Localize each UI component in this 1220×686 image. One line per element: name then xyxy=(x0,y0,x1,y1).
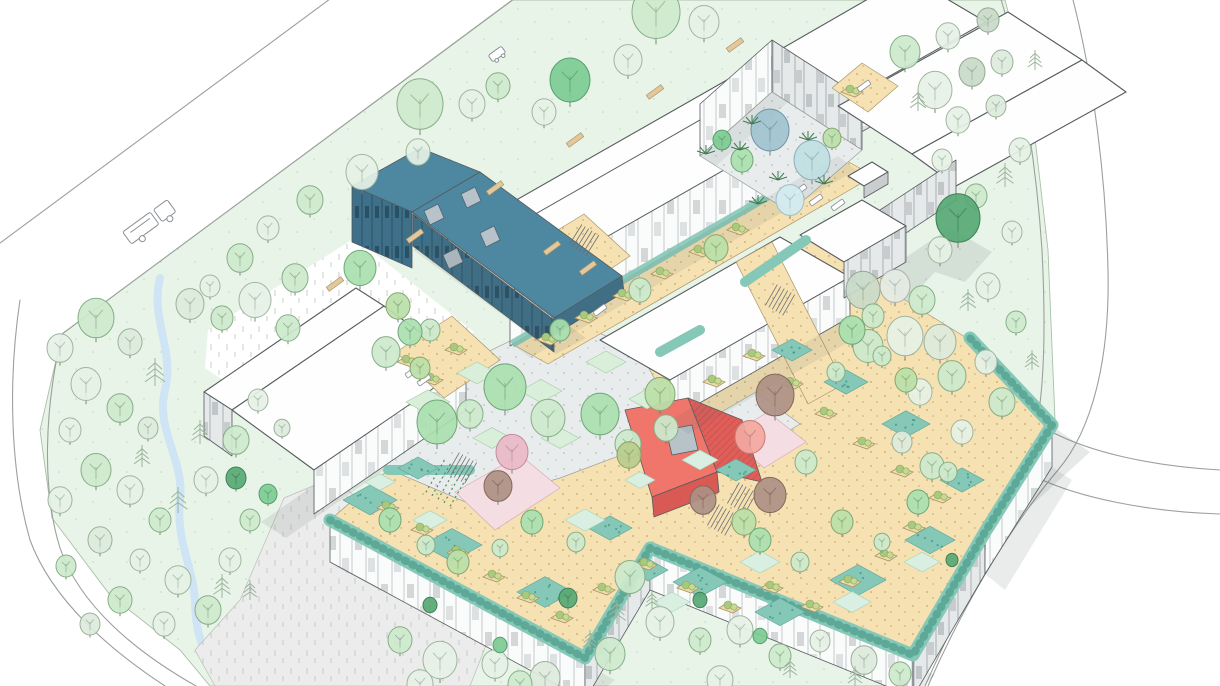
teal-patch-dot xyxy=(967,476,969,478)
teal-patch-dot xyxy=(937,544,939,546)
teal-patch-dot xyxy=(549,584,551,586)
teal-patch-dot xyxy=(618,531,620,533)
teal-patch-dot xyxy=(968,484,970,486)
teal-patch-dot xyxy=(615,528,617,530)
teal-patch-dot xyxy=(843,384,845,386)
teal-patch-dot xyxy=(846,386,848,388)
teal-patch-dot xyxy=(941,546,943,548)
planter-shrub xyxy=(851,578,857,584)
teal-patch-dot xyxy=(546,597,548,599)
tree-canopy xyxy=(493,637,507,652)
teal-patch-dot xyxy=(798,347,800,349)
teal-patch-dot xyxy=(791,346,793,348)
teal-patch-dot xyxy=(744,471,746,473)
teal-patch-dot xyxy=(604,525,606,527)
teal-patch-dot xyxy=(781,349,783,351)
teal-patch-dot xyxy=(911,423,913,425)
tree-canopy xyxy=(423,597,437,612)
planter-shrub xyxy=(563,614,569,620)
teal-patch-dot xyxy=(365,497,367,499)
teal-patch-dot xyxy=(917,534,919,536)
teal-patch-dot xyxy=(534,591,536,593)
teal-patch-dot xyxy=(620,525,622,527)
teal-patch-dot xyxy=(772,617,774,619)
planter-shrub xyxy=(689,584,695,590)
teal-patch-dot xyxy=(727,474,729,476)
teal-patch-dot xyxy=(841,385,843,387)
tree-canopy xyxy=(946,553,958,566)
teal-patch-dot xyxy=(859,572,861,574)
planter-shrub xyxy=(903,468,909,474)
teal-patch-dot xyxy=(548,586,550,588)
planter-shrub xyxy=(941,494,947,500)
teal-patch-dot xyxy=(357,495,359,497)
teal-patch-dot xyxy=(792,351,794,353)
planter-shrub xyxy=(423,526,429,532)
teal-patch-dot xyxy=(845,380,847,382)
planter-shrub xyxy=(529,594,535,600)
teal-patch-dot xyxy=(728,466,730,468)
teal-patch-dot xyxy=(770,605,772,607)
planter-shrub xyxy=(739,226,745,232)
teal-patch-dot xyxy=(913,419,915,421)
planter-shrub xyxy=(755,352,761,358)
teal-patch-dot xyxy=(904,427,906,429)
teal-patch-dot xyxy=(769,616,771,618)
planter-shrub xyxy=(865,440,871,446)
teal-patch-dot xyxy=(697,574,699,576)
planter-shrub xyxy=(793,380,799,386)
teal-patch-dot xyxy=(779,612,781,614)
teal-patch-dot xyxy=(448,539,450,541)
teal-patch-dot xyxy=(958,482,960,484)
teal-patch-dot xyxy=(408,467,410,469)
teal-patch-dot xyxy=(931,540,933,542)
planter-shrub xyxy=(887,552,893,558)
teal-patch-dot xyxy=(739,472,741,474)
teal-patch-dot xyxy=(445,536,447,538)
teal-patch-dot xyxy=(410,463,412,465)
planter-shrub xyxy=(605,586,611,592)
planter-shrub xyxy=(647,561,653,567)
planter-shrub xyxy=(813,603,819,609)
tree-canopy xyxy=(753,628,767,643)
teal-patch-dot xyxy=(370,501,372,503)
tree-canopy xyxy=(693,592,707,607)
planter-shrub xyxy=(587,314,593,320)
teal-patch-dot xyxy=(791,609,793,611)
planter-shrub xyxy=(457,346,463,352)
teal-patch-dot xyxy=(862,577,864,579)
teal-patch-dot xyxy=(970,481,972,483)
teal-patch-dot xyxy=(359,494,361,496)
planter-shrub xyxy=(715,378,721,384)
teal-patch-dot xyxy=(653,572,655,574)
teal-patch-dot xyxy=(701,577,703,579)
teal-patch-dot xyxy=(743,473,745,475)
planter-shrub xyxy=(915,524,921,530)
teal-patch-dot xyxy=(700,579,702,581)
planter-shrub xyxy=(495,573,501,579)
site-illustration xyxy=(0,0,1220,686)
teal-patch-dot xyxy=(967,473,969,475)
planter-shrub xyxy=(731,604,737,610)
teal-patch-dot xyxy=(705,583,707,585)
teal-patch-dot xyxy=(924,537,926,539)
teal-patch-dot xyxy=(701,588,703,590)
masterplan-drawing xyxy=(0,0,1220,686)
teal-patch-dot xyxy=(420,468,422,470)
teal-patch-dot xyxy=(895,424,897,426)
teal-patch-dot xyxy=(608,524,610,526)
planter-shrub xyxy=(827,410,833,416)
planter-shrub xyxy=(433,376,439,382)
planter-shrub xyxy=(663,270,669,276)
planter-shrub xyxy=(773,584,779,590)
teal-patch-dot xyxy=(427,470,429,472)
